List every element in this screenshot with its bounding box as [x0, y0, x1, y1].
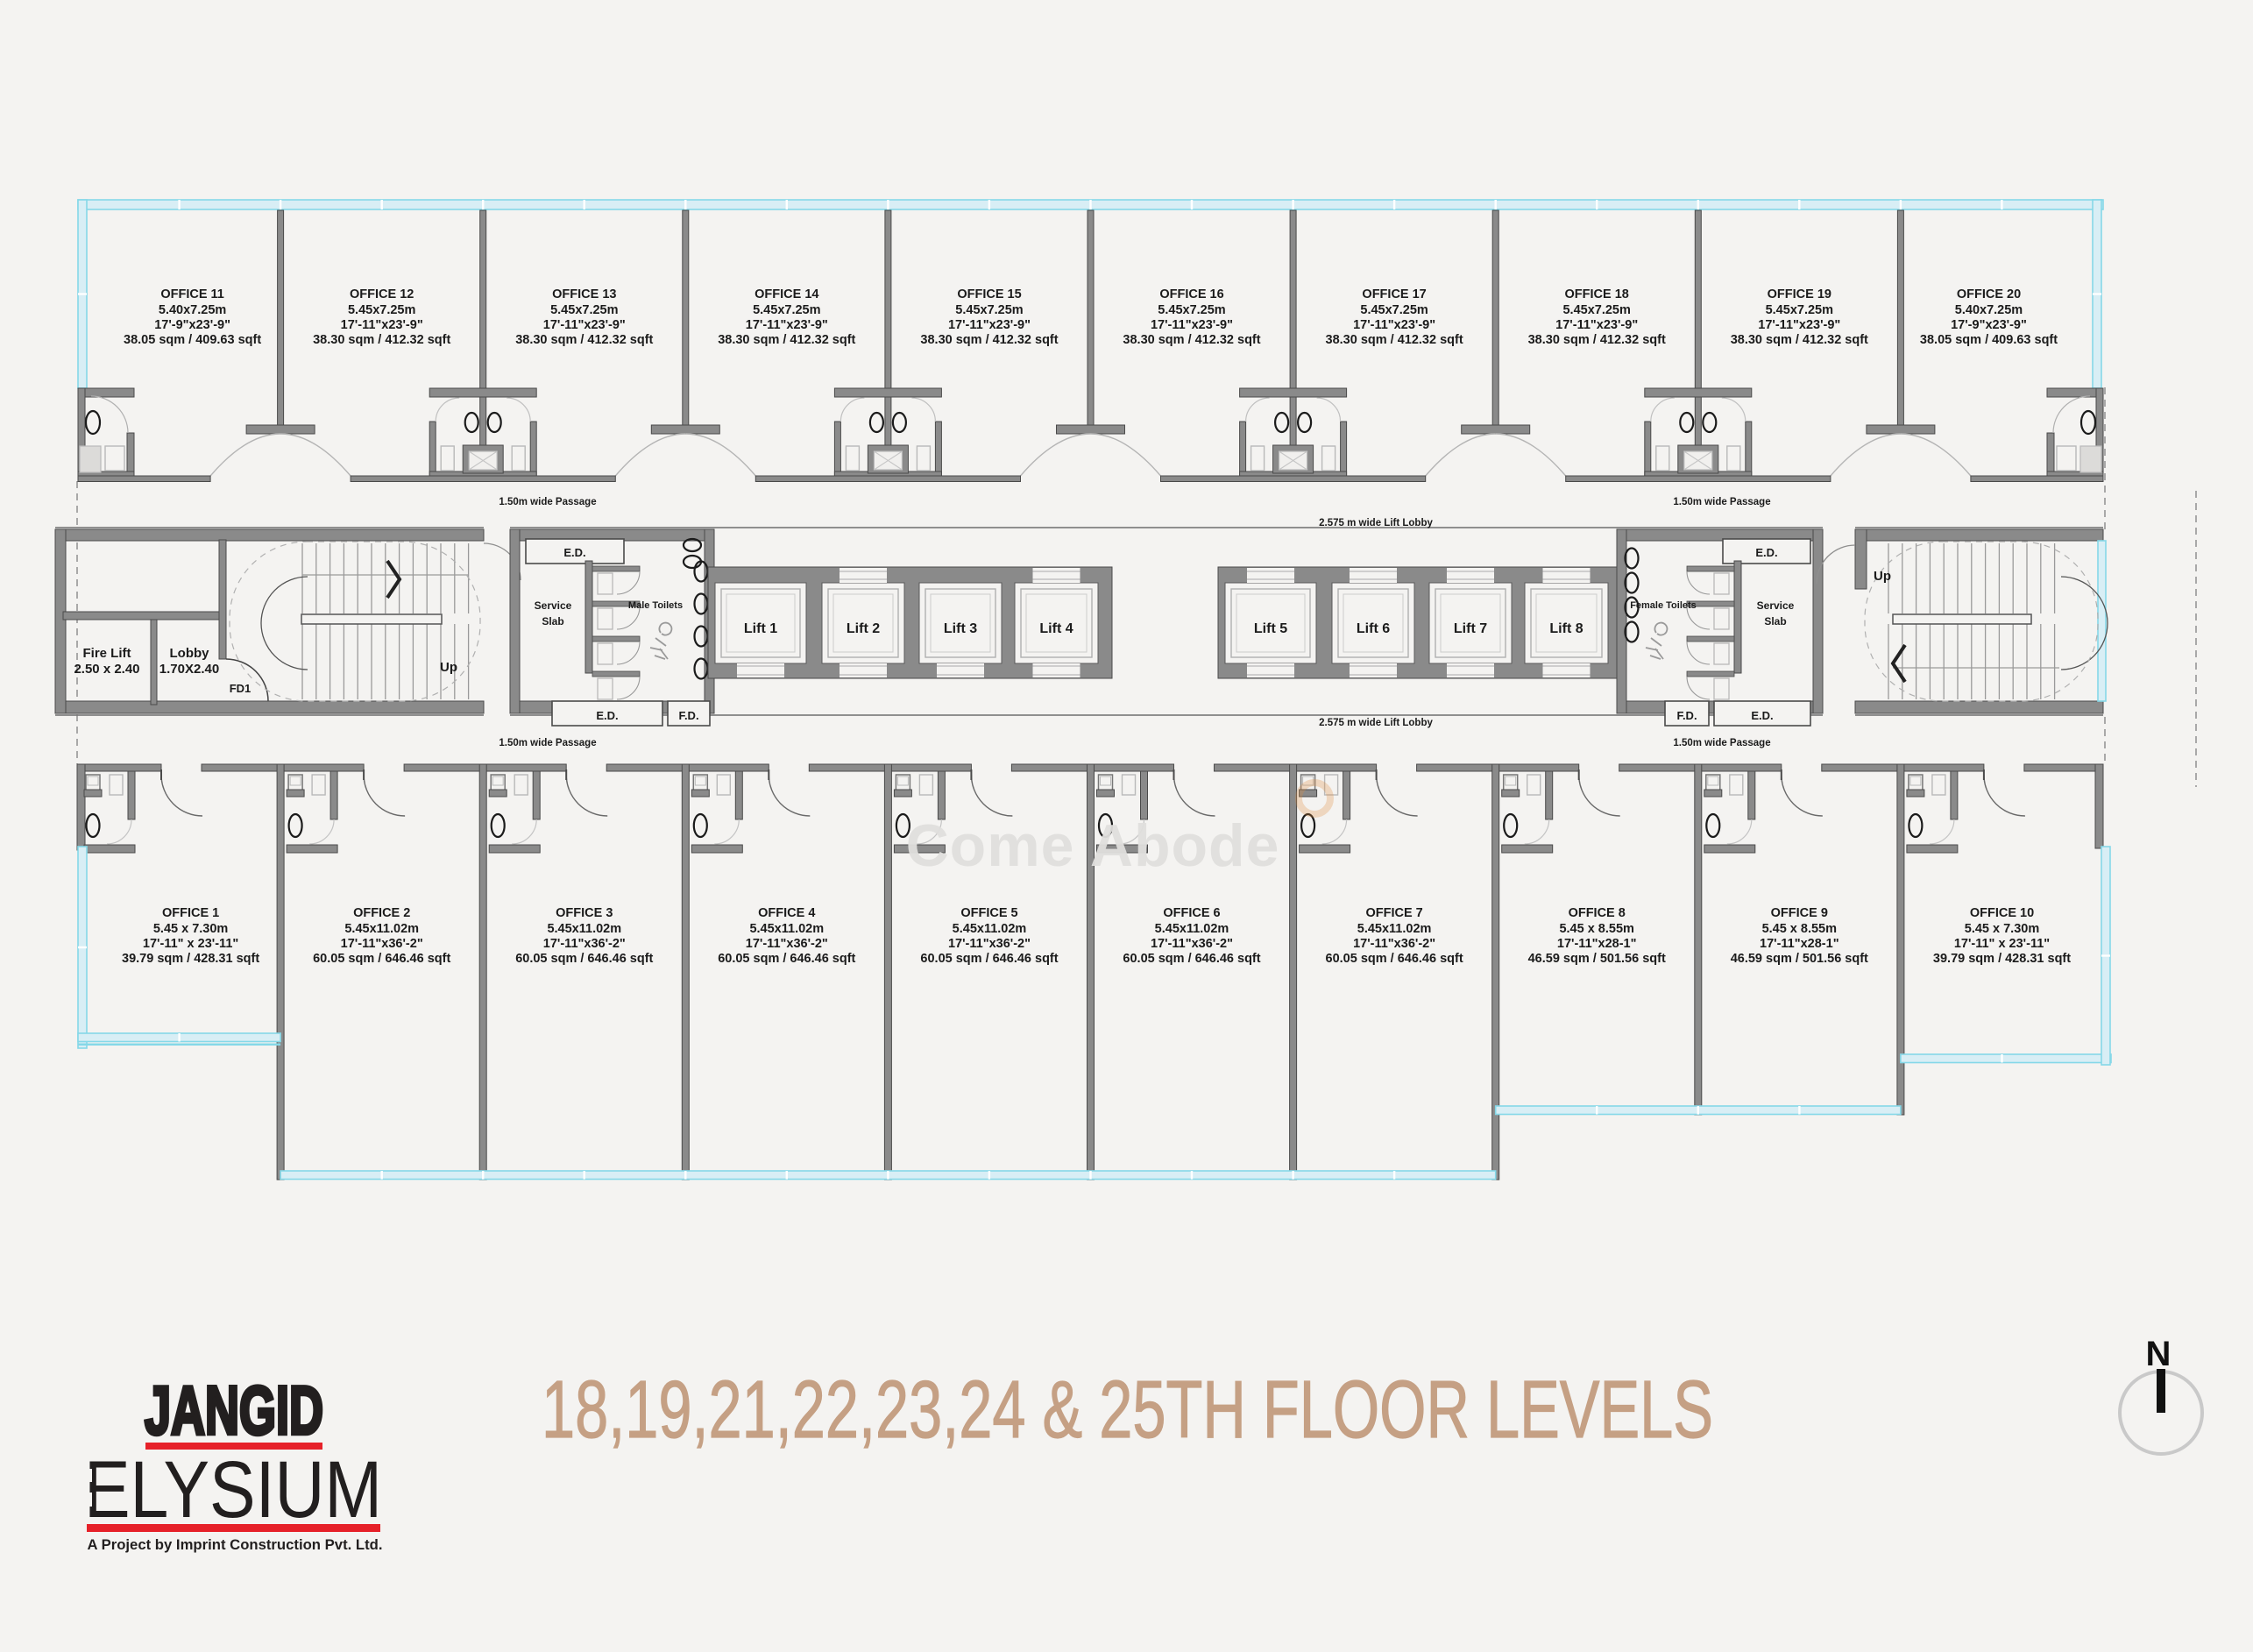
svg-text:Slab: Slab [1764, 615, 1786, 627]
svg-text:Lift 8: Lift 8 [1549, 621, 1583, 636]
svg-text:Female Toilets: Female Toilets [1630, 600, 1697, 611]
svg-text:Up: Up [440, 660, 457, 675]
svg-text:38.30 sqm / 412.32 sqft: 38.30 sqm / 412.32 sqft [1123, 333, 1260, 347]
svg-text:60.05 sqm / 646.46 sqft: 60.05 sqm / 646.46 sqft [1326, 952, 1463, 966]
svg-text:17'-11"x23'-9": 17'-11"x23'-9" [1758, 318, 1840, 332]
svg-text:Lobby: Lobby [170, 646, 210, 661]
svg-text:17'-11"x28-1": 17'-11"x28-1" [1760, 937, 1839, 951]
svg-text:OFFICE 3: OFFICE 3 [556, 906, 613, 920]
svg-text:Lift 7: Lift 7 [1454, 621, 1487, 636]
svg-text:17'-11"x28-1": 17'-11"x28-1" [1557, 937, 1637, 951]
svg-text:FD1: FD1 [230, 682, 252, 695]
svg-text:17'-11"x36'-2": 17'-11"x36'-2" [543, 937, 626, 951]
svg-text:5.45x11.02m: 5.45x11.02m [344, 922, 419, 936]
svg-text:38.30 sqm / 412.32 sqft: 38.30 sqm / 412.32 sqft [515, 333, 653, 347]
svg-text:1.50m wide Passage: 1.50m wide Passage [499, 738, 596, 748]
svg-text:OFFICE 10: OFFICE 10 [1970, 906, 2034, 920]
svg-text:5.45x11.02m: 5.45x11.02m [1357, 922, 1432, 936]
svg-text:38.05 sqm / 409.63 sqft: 38.05 sqm / 409.63 sqft [1920, 333, 2058, 347]
svg-text:OFFICE 15: OFFICE 15 [957, 287, 1021, 301]
svg-text:17'-11"x23'-9": 17'-11"x23'-9" [1151, 318, 1233, 332]
svg-text:OFFICE 8: OFFICE 8 [1569, 906, 1626, 920]
svg-text:Come Abode: Come Abode [906, 812, 1280, 879]
svg-text:17'-11"x23'-9": 17'-11"x23'-9" [1555, 318, 1638, 332]
svg-text:OFFICE 11: OFFICE 11 [160, 287, 224, 301]
svg-text:18,19,21,22,23,24 & 25TH FLOOR: 18,19,21,22,23,24 & 25TH FLOOR LEVELS [542, 1364, 1713, 1455]
svg-text:F.D.: F.D. [678, 709, 698, 722]
svg-text:5.45x11.02m: 5.45x11.02m [547, 922, 621, 936]
svg-text:2.50 x 2.40: 2.50 x 2.40 [74, 662, 139, 677]
svg-text:1.70X2.40: 1.70X2.40 [159, 662, 219, 677]
svg-text:OFFICE 1: OFFICE 1 [162, 906, 219, 920]
svg-text:39.79 sqm / 428.31 sqft: 39.79 sqm / 428.31 sqft [1933, 952, 2071, 966]
svg-text:17'-9"x23'-9": 17'-9"x23'-9" [1951, 318, 2027, 332]
svg-text:OFFICE 17: OFFICE 17 [1362, 287, 1426, 301]
svg-text:OFFICE 14: OFFICE 14 [755, 287, 818, 301]
svg-text:17'-11"x36'-2": 17'-11"x36'-2" [948, 937, 1031, 951]
svg-text:E.D.: E.D. [563, 546, 585, 559]
svg-text:Service: Service [535, 599, 572, 612]
svg-text:5.45x11.02m: 5.45x11.02m [953, 922, 1027, 936]
svg-text:5.45x7.25m: 5.45x7.25m [1158, 303, 1225, 317]
svg-text:E.D.: E.D. [1755, 546, 1777, 559]
svg-text:38.30 sqm / 412.32 sqft: 38.30 sqm / 412.32 sqft [1528, 333, 1666, 347]
svg-text:5.40x7.25m: 5.40x7.25m [1955, 303, 2023, 317]
svg-text:OFFICE 4: OFFICE 4 [758, 906, 815, 920]
svg-text:OFFICE 6: OFFICE 6 [1163, 906, 1220, 920]
svg-text:17'-9"x23'-9": 17'-9"x23'-9" [154, 318, 230, 332]
svg-text:38.30 sqm / 412.32 sqft: 38.30 sqm / 412.32 sqft [718, 333, 855, 347]
svg-text:5.45x7.25m: 5.45x7.25m [1766, 303, 1833, 317]
svg-text:5.45x7.25m: 5.45x7.25m [550, 303, 618, 317]
svg-text:OFFICE 20: OFFICE 20 [1957, 287, 2021, 301]
svg-text:60.05 sqm / 646.46 sqft: 60.05 sqm / 646.46 sqft [718, 952, 855, 966]
svg-text:17'-11"x36'-2": 17'-11"x36'-2" [1353, 937, 1435, 951]
svg-text:Lift 2: Lift 2 [847, 621, 880, 636]
svg-text:60.05 sqm / 646.46 sqft: 60.05 sqm / 646.46 sqft [1123, 952, 1260, 966]
svg-text:17'-11" x 23'-11": 17'-11" x 23'-11" [1954, 937, 2050, 951]
svg-text:5.45x11.02m: 5.45x11.02m [749, 922, 824, 936]
svg-text:OFFICE 12: OFFICE 12 [350, 287, 414, 301]
svg-text:5.45x7.25m: 5.45x7.25m [348, 303, 415, 317]
svg-text:5.40x7.25m: 5.40x7.25m [159, 303, 226, 317]
svg-text:2.575 m wide Lift Lobby: 2.575 m wide Lift Lobby [1319, 518, 1433, 528]
svg-text:38.05 sqm / 409.63 sqft: 38.05 sqm / 409.63 sqft [124, 333, 261, 347]
svg-text:E.D.: E.D. [1751, 709, 1773, 722]
svg-text:Lift 5: Lift 5 [1254, 621, 1287, 636]
svg-text:Lift 1: Lift 1 [744, 621, 777, 636]
svg-text:1.50m wide Passage: 1.50m wide Passage [1673, 738, 1770, 748]
svg-text:5.45x11.02m: 5.45x11.02m [1155, 922, 1229, 936]
svg-text:Lift 6: Lift 6 [1357, 621, 1390, 636]
svg-text:38.30 sqm / 412.32 sqft: 38.30 sqm / 412.32 sqft [1731, 333, 1868, 347]
svg-text:17'-11" x 23'-11": 17'-11" x 23'-11" [143, 937, 238, 951]
svg-text:A Project by Imprint Construct: A Project by Imprint Construction Pvt. L… [88, 1536, 383, 1553]
svg-text:2.575 m wide Lift Lobby: 2.575 m wide Lift Lobby [1319, 718, 1433, 728]
svg-text:17'-11"x23'-9": 17'-11"x23'-9" [341, 318, 423, 332]
svg-text:5.45x7.25m: 5.45x7.25m [955, 303, 1023, 317]
svg-text:38.30 sqm / 412.32 sqft: 38.30 sqm / 412.32 sqft [313, 333, 450, 347]
svg-text:Slab: Slab [542, 615, 563, 627]
svg-text:17'-11"x36'-2": 17'-11"x36'-2" [1151, 937, 1233, 951]
svg-text:17'-11"x23'-9": 17'-11"x23'-9" [948, 318, 1031, 332]
svg-text:OFFICE 19: OFFICE 19 [1768, 287, 1831, 301]
svg-text:60.05 sqm / 646.46 sqft: 60.05 sqm / 646.46 sqft [920, 952, 1058, 966]
svg-text:OFFICE 2: OFFICE 2 [353, 906, 410, 920]
svg-text:OFFICE 18: OFFICE 18 [1565, 287, 1629, 301]
svg-text:39.79 sqm / 428.31 sqft: 39.79 sqm / 428.31 sqft [122, 952, 259, 966]
svg-text:Lift 3: Lift 3 [944, 621, 977, 636]
svg-text:F.D.: F.D. [1676, 709, 1697, 722]
svg-text:46.59 sqm / 501.56 sqft: 46.59 sqm / 501.56 sqft [1731, 952, 1868, 966]
svg-text:5.45x7.25m: 5.45x7.25m [1562, 303, 1630, 317]
svg-text:17'-11"x36'-2": 17'-11"x36'-2" [746, 937, 828, 951]
svg-text:Male Toilets: Male Toilets [628, 600, 683, 611]
svg-text:60.05 sqm / 646.46 sqft: 60.05 sqm / 646.46 sqft [313, 952, 450, 966]
svg-text:ELYSIUM: ELYSIUM [84, 1445, 382, 1535]
svg-text:OFFICE 7: OFFICE 7 [1365, 906, 1422, 920]
svg-text:1.50m wide Passage: 1.50m wide Passage [499, 497, 596, 507]
svg-text:OFFICE 9: OFFICE 9 [1771, 906, 1828, 920]
svg-text:5.45x7.25m: 5.45x7.25m [753, 303, 820, 317]
svg-text:N: N [2146, 1335, 2172, 1373]
svg-text:Up: Up [1874, 569, 1891, 584]
svg-text:OFFICE 5: OFFICE 5 [960, 906, 1017, 920]
svg-text:E.D.: E.D. [596, 709, 618, 722]
svg-text:38.30 sqm / 412.32 sqft: 38.30 sqm / 412.32 sqft [920, 333, 1058, 347]
svg-text:OFFICE 16: OFFICE 16 [1159, 287, 1223, 301]
svg-text:5.45x7.25m: 5.45x7.25m [1360, 303, 1428, 317]
svg-text:38.30 sqm / 412.32 sqft: 38.30 sqm / 412.32 sqft [1326, 333, 1463, 347]
svg-text:OFFICE 13: OFFICE 13 [552, 287, 616, 301]
svg-text:5.45 x 7.30m: 5.45 x 7.30m [1965, 922, 2039, 936]
svg-text:1.50m wide Passage: 1.50m wide Passage [1673, 497, 1770, 507]
svg-text:Service: Service [1757, 599, 1795, 612]
svg-text:17'-11"x23'-9": 17'-11"x23'-9" [1353, 318, 1435, 332]
svg-text:46.59 sqm / 501.56 sqft: 46.59 sqm / 501.56 sqft [1528, 952, 1666, 966]
svg-text:60.05 sqm / 646.46 sqft: 60.05 sqm / 646.46 sqft [515, 952, 653, 966]
svg-text:5.45 x 8.55m: 5.45 x 8.55m [1559, 922, 1633, 936]
svg-text:5.45 x 7.30m: 5.45 x 7.30m [153, 922, 228, 936]
svg-text:5.45 x 8.55m: 5.45 x 8.55m [1762, 922, 1837, 936]
svg-text:17'-11"x23'-9": 17'-11"x23'-9" [543, 318, 626, 332]
svg-text:17'-11"x36'-2": 17'-11"x36'-2" [341, 937, 423, 951]
svg-text:Fire Lift: Fire Lift [83, 646, 131, 661]
svg-text:JANGID: JANGID [145, 1372, 323, 1449]
svg-text:Lift 4: Lift 4 [1039, 621, 1073, 636]
svg-text:17'-11"x23'-9": 17'-11"x23'-9" [746, 318, 828, 332]
